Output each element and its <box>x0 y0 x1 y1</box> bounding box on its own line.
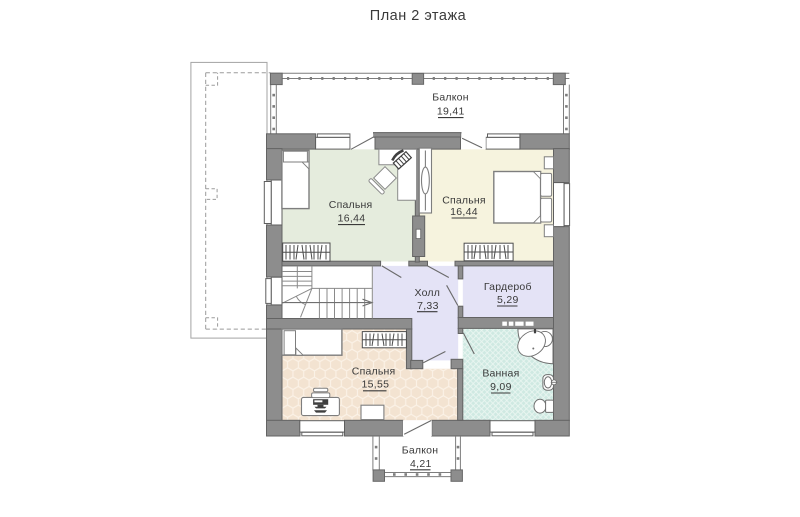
svg-text:Гардероб: Гардероб <box>484 281 532 293</box>
svg-text:Балкон: Балкон <box>432 92 468 104</box>
svg-text:Холл: Холл <box>415 287 441 299</box>
svg-text:5,29: 5,29 <box>497 294 519 306</box>
svg-text:19,41: 19,41 <box>437 105 465 117</box>
svg-text:9,09: 9,09 <box>490 381 512 393</box>
svg-text:План 2 этажа: План 2 этажа <box>370 8 467 24</box>
svg-text:7,33: 7,33 <box>417 300 439 312</box>
svg-text:Спальня: Спальня <box>442 194 486 206</box>
svg-text:Спальня: Спальня <box>329 199 373 211</box>
svg-text:Спальня: Спальня <box>352 365 396 377</box>
svg-text:15,55: 15,55 <box>362 379 390 391</box>
svg-text:16,44: 16,44 <box>338 213 366 225</box>
svg-text:4,21: 4,21 <box>410 458 432 470</box>
svg-text:16,44: 16,44 <box>450 206 478 218</box>
svg-text:Ванная: Ванная <box>482 368 519 380</box>
svg-text:Балкон: Балкон <box>402 445 438 457</box>
